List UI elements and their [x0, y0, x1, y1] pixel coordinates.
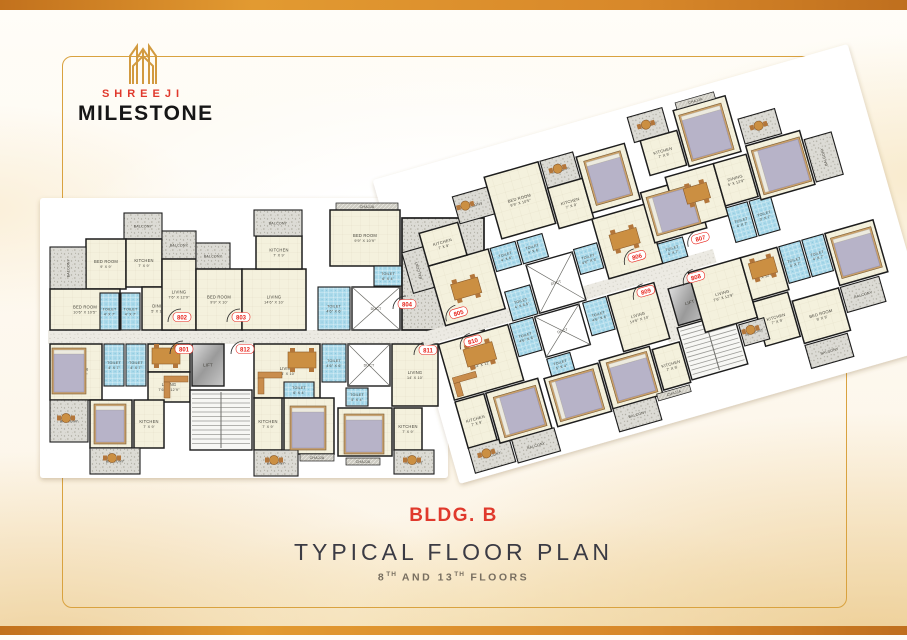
round-table [61, 413, 70, 422]
room-label: TOILET6' X 4' [381, 272, 395, 281]
room-label: DUCT [371, 307, 382, 311]
chair [173, 364, 178, 368]
room-label: BALCONY [134, 224, 153, 228]
corridor-area [48, 330, 438, 344]
plan-title: TYPICAL FLOOR PLAN [0, 539, 907, 566]
floors-line: 8TH AND 13TH FLOORS [0, 571, 907, 584]
dining-table [288, 352, 316, 368]
room-label: BED ROOM9'9" X 10' [207, 295, 231, 305]
unit-number: 804 [402, 302, 413, 308]
lift-label: LIFT [203, 362, 213, 367]
floors-line-part: AND 13 [397, 572, 454, 584]
round-table [107, 453, 116, 462]
room-label: BALCONY [204, 254, 223, 258]
room-label: TOILET4' X 7' [103, 308, 117, 317]
room-label: DUCT [364, 363, 375, 367]
mattress [292, 412, 324, 448]
mattress [96, 410, 124, 442]
chair [309, 348, 314, 352]
room-label: TOILET4' X 7' [129, 361, 143, 370]
left-wing: BALCONYBED ROOM9' X 9'KITCHEN7' X 9'BALC… [48, 203, 484, 476]
chair [290, 348, 295, 352]
room-label: TOILET5' X 4' [350, 393, 364, 402]
pillow [292, 408, 324, 412]
room-label: TOILET4' X 7' [107, 361, 121, 370]
chair [71, 416, 75, 421]
pillow [54, 350, 84, 354]
room-label: LIVING14' X 10' [407, 370, 423, 380]
round-table [269, 455, 278, 464]
room-label: CHAJJA [360, 205, 375, 209]
room-label: BED ROOM9'9" X 10'9" [353, 233, 377, 243]
mattress [54, 354, 84, 392]
room-label: CHAJJA [356, 460, 371, 464]
round-table [407, 455, 416, 464]
room-label: TOILET4'6" X 6' [326, 359, 341, 368]
chair [154, 364, 159, 368]
chair [290, 368, 295, 372]
room-label: TOILET4' X 7' [124, 308, 138, 317]
sofa [164, 376, 188, 382]
unit-number: 803 [236, 315, 247, 321]
unit-number: 812 [240, 347, 251, 353]
chair [309, 368, 314, 372]
chair [279, 458, 283, 463]
room-label: BED ROOM10'6" X 10'5" [73, 305, 97, 315]
floors-line-part: TH [454, 571, 465, 578]
unit-number: 811 [423, 348, 433, 354]
room-label: TOILET6' X 4' [292, 386, 306, 395]
room-label: TOILET4'6" X 6' [326, 305, 341, 314]
pillow [346, 416, 382, 420]
room-label: BALCONY [66, 258, 70, 277]
sofa [258, 372, 282, 378]
floors-line-part: TH [386, 571, 397, 578]
room-label: BALCONY [269, 221, 288, 225]
chair [417, 458, 421, 463]
sofa [164, 382, 170, 398]
unit-number: 802 [177, 315, 188, 321]
room-label: LIVING14'6" X 10' [264, 295, 284, 305]
chair [265, 458, 269, 463]
chair [117, 456, 121, 461]
room-label: CHAJJA [310, 456, 325, 460]
chair [103, 456, 107, 461]
mattress [346, 420, 382, 452]
unit-number: 801 [179, 347, 190, 353]
floors-line-part: FLOORS [465, 572, 529, 584]
building-label: BLDG. B [0, 505, 907, 527]
room-label: BALCONY [170, 243, 189, 247]
floors-line-part: 8 [378, 572, 386, 584]
sofa [258, 378, 264, 394]
pillow [96, 406, 124, 410]
chair [57, 416, 61, 421]
chair [154, 344, 159, 348]
chair [403, 458, 407, 463]
